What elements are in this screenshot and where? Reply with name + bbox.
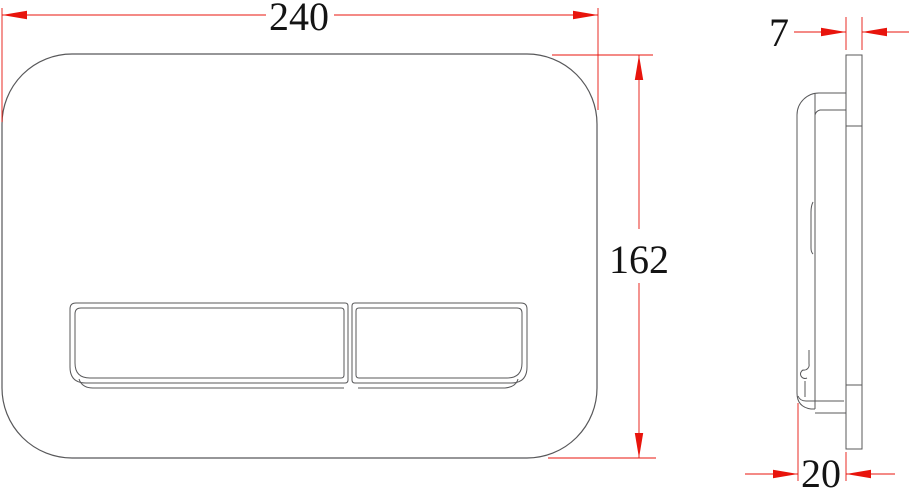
thickness-dimension: 7 — [769, 10, 909, 55]
front-plate-outline — [2, 54, 597, 458]
depth-dimension-label: 20 — [801, 451, 841, 492]
retaining-clip-lower — [801, 350, 810, 397]
thickness-arrow-left — [821, 28, 846, 36]
width-dimension-label: 240 — [269, 0, 329, 39]
thickness-arrow-right — [862, 28, 887, 36]
width-arrow-right — [573, 11, 598, 19]
technical-drawing-canvas: 240 162 7 20 — [0, 0, 913, 492]
flush-button-large-inner — [75, 308, 344, 378]
mounting-frame-top-flange — [815, 110, 846, 115]
flush-button-small-inner — [356, 308, 522, 378]
depth-arrow-left — [773, 470, 798, 478]
flush-button-small-outer — [352, 303, 527, 383]
width-dimension: 240 — [2, 0, 598, 122]
flush-button-large — [70, 303, 348, 388]
mounting-frame-outer-profile — [797, 93, 846, 409]
height-arrow-top — [635, 55, 643, 80]
width-arrow-left — [2, 11, 27, 19]
depth-dimension: 20 — [745, 403, 895, 492]
front-view — [2, 54, 597, 458]
side-plate-outline — [846, 55, 862, 449]
depth-arrow-right — [846, 470, 871, 478]
flush-button-large-outer — [70, 303, 348, 383]
height-dimension-label: 162 — [609, 237, 669, 282]
height-arrow-bottom — [635, 433, 643, 458]
mounting-frame — [797, 93, 846, 413]
height-dimension: 162 — [548, 55, 669, 458]
thickness-dimension-label: 7 — [769, 10, 789, 55]
flush-plate-drawing: 240 162 7 20 — [0, 0, 913, 492]
retaining-clip-upper — [811, 202, 813, 254]
flush-button-small — [352, 303, 527, 388]
side-view — [797, 55, 862, 449]
